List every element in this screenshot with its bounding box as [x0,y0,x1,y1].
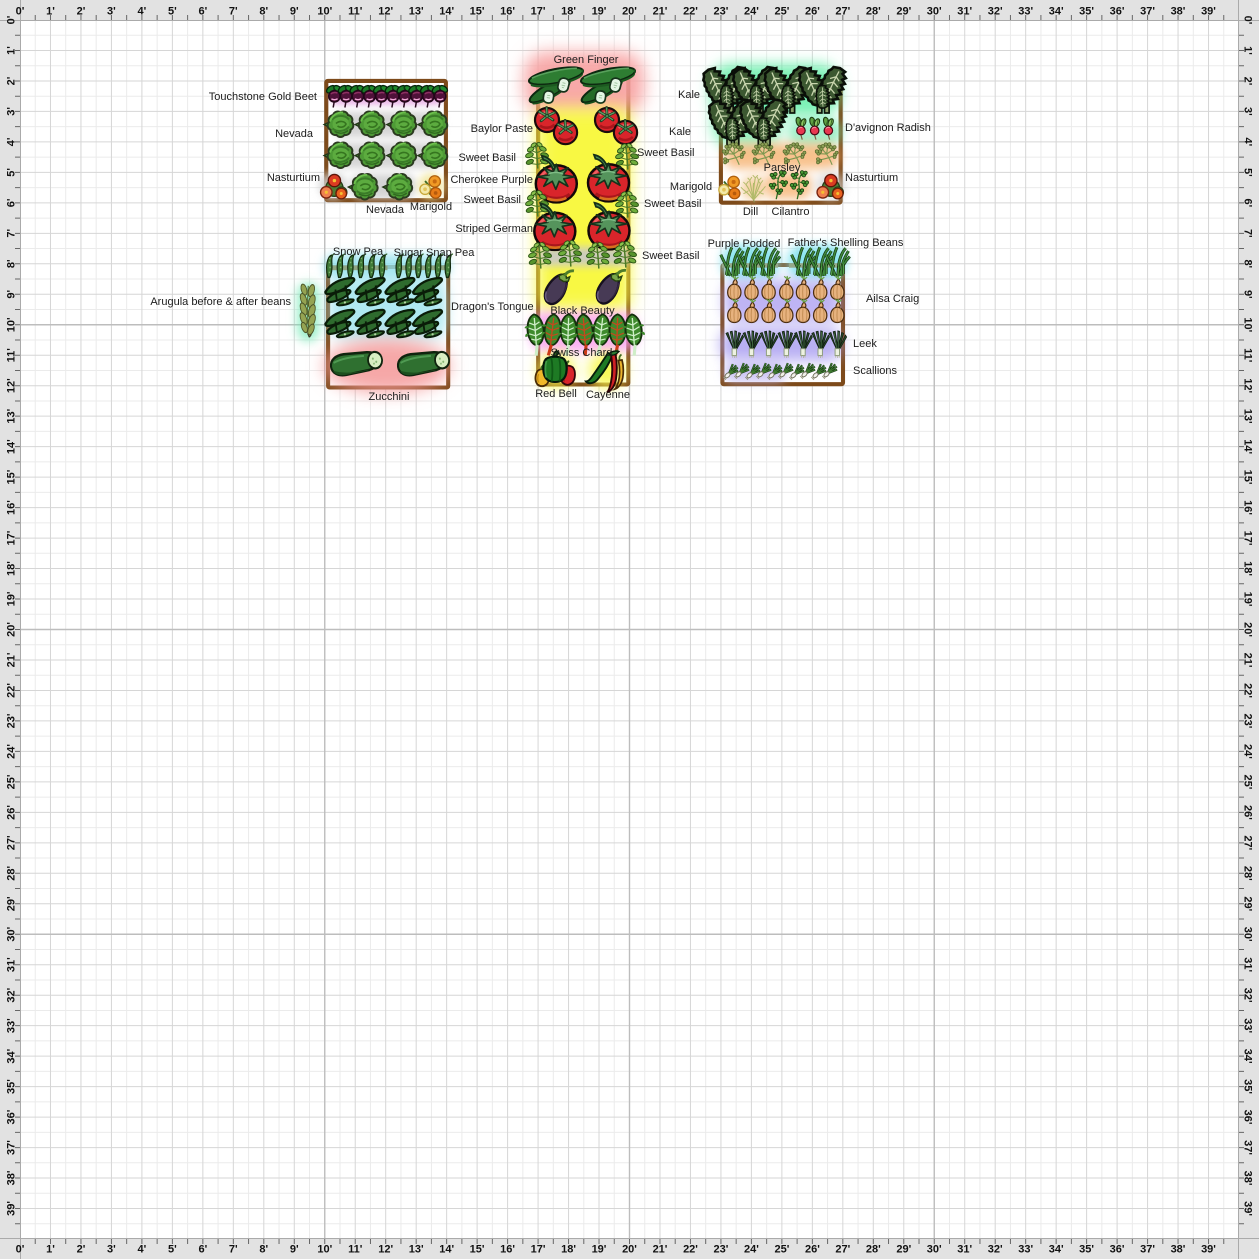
svg-text:1': 1' [46,1244,55,1256]
svg-text:10': 10' [317,6,332,18]
svg-text:29': 29' [896,6,911,18]
svg-text:5': 5' [6,168,18,177]
svg-text:0': 0' [16,1244,25,1256]
svg-text:25': 25' [774,1244,789,1256]
svg-text:16': 16' [6,500,18,515]
svg-text:24': 24' [744,1244,759,1256]
svg-text:Arugula before & after beans: Arugula before & after beans [150,296,291,308]
svg-text:20': 20' [6,622,18,637]
svg-text:0': 0' [6,15,18,24]
svg-text:36': 36' [1110,1244,1125,1256]
svg-text:23': 23' [1242,713,1254,728]
svg-text:35': 35' [1079,6,1094,18]
svg-text:Ailsa Craig: Ailsa Craig [866,293,919,305]
svg-text:32': 32' [6,987,18,1002]
svg-text:Touchstone Gold Beet: Touchstone Gold Beet [209,91,317,103]
svg-text:25': 25' [1242,774,1254,789]
svg-text:20': 20' [622,1244,637,1256]
svg-text:11': 11' [348,1244,363,1256]
svg-text:Parsley: Parsley [764,162,801,174]
svg-text:Sweet Basil: Sweet Basil [644,198,701,210]
svg-text:16': 16' [500,6,515,18]
svg-text:9': 9' [290,6,299,18]
svg-text:26': 26' [805,6,820,18]
svg-text:39': 39' [1201,1244,1216,1256]
svg-text:24': 24' [1242,744,1254,759]
svg-text:1': 1' [1242,46,1254,55]
svg-text:3': 3' [107,1244,116,1256]
svg-text:8': 8' [1242,259,1254,268]
svg-text:Nevada: Nevada [366,204,405,216]
svg-text:Marigold: Marigold [670,181,712,193]
svg-text:12': 12' [378,1244,393,1256]
svg-text:31': 31' [957,6,972,18]
svg-text:35': 35' [6,1079,18,1094]
svg-text:21': 21' [6,652,18,667]
svg-text:7': 7' [1242,229,1254,238]
svg-text:30': 30' [6,926,18,941]
svg-text:5': 5' [1242,168,1254,177]
svg-text:Sweet Basil: Sweet Basil [637,147,694,159]
svg-text:3': 3' [1242,107,1254,116]
svg-text:2': 2' [77,1244,86,1256]
svg-text:Sweet Basil: Sweet Basil [642,250,699,262]
svg-text:Striped German: Striped German [455,223,533,235]
svg-text:28': 28' [1242,866,1254,881]
svg-text:Cherokee Purple: Cherokee Purple [450,174,533,186]
svg-text:33': 33' [1242,1018,1254,1033]
svg-text:12': 12' [1242,378,1254,393]
svg-text:Swiss Chard: Swiss Chard [551,347,613,359]
svg-text:Nasturtium: Nasturtium [267,172,320,184]
svg-text:17': 17' [531,6,546,18]
svg-text:Nasturtium: Nasturtium [845,172,898,184]
svg-text:24': 24' [744,6,759,18]
svg-text:27': 27' [835,6,850,18]
svg-text:31': 31' [6,957,18,972]
svg-text:8': 8' [259,6,268,18]
svg-text:16': 16' [1242,500,1254,515]
svg-text:Cilantro: Cilantro [772,206,810,218]
svg-text:32': 32' [1242,988,1254,1003]
svg-text:22': 22' [1242,683,1254,698]
svg-text:32': 32' [988,6,1003,18]
svg-text:9': 9' [6,290,18,299]
svg-text:6': 6' [6,198,18,207]
svg-text:25': 25' [6,774,18,789]
svg-text:27': 27' [835,1244,850,1256]
svg-text:30': 30' [927,6,942,18]
svg-text:17': 17' [6,530,18,545]
svg-text:Sweet Basil: Sweet Basil [459,152,516,164]
svg-text:16': 16' [500,1244,515,1256]
svg-text:36': 36' [1242,1110,1254,1125]
svg-text:21': 21' [653,1244,668,1256]
svg-text:Snow Pea: Snow Pea [333,246,384,258]
svg-text:Purple Podded: Purple Podded [708,238,781,250]
svg-text:2': 2' [1242,77,1254,86]
svg-text:6': 6' [1242,199,1254,208]
svg-text:36': 36' [6,1109,18,1124]
svg-text:3': 3' [107,6,116,18]
svg-text:15': 15' [6,469,18,484]
svg-text:23': 23' [713,1244,728,1256]
svg-text:Baylor Paste: Baylor Paste [471,123,533,135]
svg-text:9': 9' [290,1244,299,1256]
svg-text:2': 2' [6,76,18,85]
svg-text:35': 35' [1242,1079,1254,1094]
svg-text:Nevada: Nevada [275,128,314,140]
svg-text:24': 24' [6,744,18,759]
svg-text:Cayenne: Cayenne [586,389,630,401]
svg-text:27': 27' [1242,835,1254,850]
svg-text:Father's Shelling Beans: Father's Shelling Beans [788,237,904,249]
svg-text:11': 11' [6,348,18,363]
svg-text:10': 10' [317,1244,332,1256]
svg-text:39': 39' [1201,6,1216,18]
svg-text:31': 31' [957,1244,972,1256]
svg-text:4': 4' [138,1244,147,1256]
svg-text:28': 28' [866,6,881,18]
svg-text:17': 17' [1242,531,1254,546]
svg-text:Sweet Basil: Sweet Basil [464,194,521,206]
svg-text:10': 10' [1242,317,1254,332]
svg-text:32': 32' [988,1244,1003,1256]
svg-text:4': 4' [138,6,147,18]
svg-text:36': 36' [1110,6,1125,18]
svg-text:15': 15' [470,6,485,18]
svg-text:8': 8' [6,259,18,268]
svg-text:12': 12' [378,6,393,18]
svg-text:20': 20' [1242,622,1254,637]
svg-text:6': 6' [199,6,208,18]
svg-text:38': 38' [6,1170,18,1185]
svg-text:5': 5' [168,6,177,18]
svg-text:Kale: Kale [669,126,691,138]
svg-text:29': 29' [1242,896,1254,911]
svg-text:7': 7' [229,6,238,18]
svg-text:22': 22' [6,683,18,698]
svg-text:Leek: Leek [853,338,877,350]
svg-text:38': 38' [1171,1244,1186,1256]
svg-text:18': 18' [1242,561,1254,576]
svg-text:23': 23' [713,6,728,18]
svg-text:29': 29' [896,1244,911,1256]
svg-text:33': 33' [1018,1244,1033,1256]
svg-text:29': 29' [6,896,18,911]
svg-text:Sugar Snap Pea: Sugar Snap Pea [394,247,476,259]
svg-text:30': 30' [1242,927,1254,942]
svg-text:34': 34' [1049,1244,1064,1256]
svg-text:33': 33' [6,1018,18,1033]
svg-text:21': 21' [1242,653,1254,668]
svg-text:0': 0' [1242,16,1254,25]
svg-text:7': 7' [6,229,18,238]
svg-text:39': 39' [1242,1201,1254,1216]
svg-text:28': 28' [6,865,18,880]
svg-text:4': 4' [1242,138,1254,147]
svg-text:7': 7' [229,1244,238,1256]
svg-text:19': 19' [1242,592,1254,607]
svg-text:4': 4' [6,137,18,146]
svg-text:30': 30' [927,1244,942,1256]
svg-text:31': 31' [1242,957,1254,972]
svg-text:2': 2' [77,6,86,18]
svg-text:17': 17' [531,1244,546,1256]
svg-text:20': 20' [622,6,637,18]
svg-text:9': 9' [1242,290,1254,299]
svg-text:26': 26' [1242,805,1254,820]
svg-text:11': 11' [348,6,363,18]
svg-text:14': 14' [439,6,454,18]
svg-text:22': 22' [683,6,698,18]
svg-text:13': 13' [409,1244,424,1256]
svg-text:Green Finger: Green Finger [554,54,619,66]
svg-text:37': 37' [6,1140,18,1155]
svg-text:26': 26' [805,1244,820,1256]
svg-text:38': 38' [1242,1171,1254,1186]
svg-text:34': 34' [1242,1049,1254,1064]
svg-text:6': 6' [199,1244,208,1256]
svg-text:19': 19' [592,1244,607,1256]
svg-text:38': 38' [1171,6,1186,18]
svg-text:18': 18' [6,561,18,576]
svg-text:14': 14' [439,1244,454,1256]
svg-text:10': 10' [6,317,18,332]
svg-text:12': 12' [6,378,18,393]
svg-text:18': 18' [561,1244,576,1256]
svg-text:37': 37' [1140,1244,1155,1256]
svg-text:D'avignon Radish: D'avignon Radish [845,122,931,134]
svg-text:Zucchini: Zucchini [369,391,410,403]
svg-text:19': 19' [6,591,18,606]
svg-text:Kale: Kale [678,89,700,101]
svg-text:Dill: Dill [743,206,758,218]
svg-text:33': 33' [1018,6,1033,18]
svg-text:28': 28' [866,1244,881,1256]
svg-text:39': 39' [6,1201,18,1216]
svg-text:13': 13' [409,6,424,18]
svg-text:35': 35' [1079,1244,1094,1256]
svg-text:18': 18' [561,6,576,18]
svg-text:25': 25' [774,6,789,18]
svg-text:13': 13' [1242,409,1254,424]
svg-text:Scallions: Scallions [853,365,898,377]
svg-text:5': 5' [168,1244,177,1256]
svg-text:23': 23' [6,713,18,728]
svg-text:13': 13' [6,408,18,423]
svg-text:14': 14' [1242,439,1254,454]
svg-text:37': 37' [1242,1140,1254,1155]
svg-text:1': 1' [46,6,55,18]
svg-text:14': 14' [6,439,18,454]
svg-text:3': 3' [6,107,18,116]
svg-text:19': 19' [592,6,607,18]
svg-text:27': 27' [6,835,18,850]
svg-text:8': 8' [259,1244,268,1256]
svg-text:15': 15' [470,1244,485,1256]
svg-text:Dragon's Tongue: Dragon's Tongue [451,301,534,313]
svg-text:34': 34' [6,1048,18,1063]
svg-text:22': 22' [683,1244,698,1256]
svg-text:Marigold: Marigold [410,201,452,213]
svg-text:26': 26' [6,805,18,820]
svg-text:Black Beauty: Black Beauty [550,305,615,317]
svg-text:Red Bell: Red Bell [535,388,577,400]
svg-text:37': 37' [1140,6,1155,18]
svg-text:15': 15' [1242,470,1254,485]
svg-text:1': 1' [6,46,18,55]
svg-text:21': 21' [653,6,668,18]
svg-text:34': 34' [1049,6,1064,18]
svg-text:11': 11' [1242,348,1254,363]
